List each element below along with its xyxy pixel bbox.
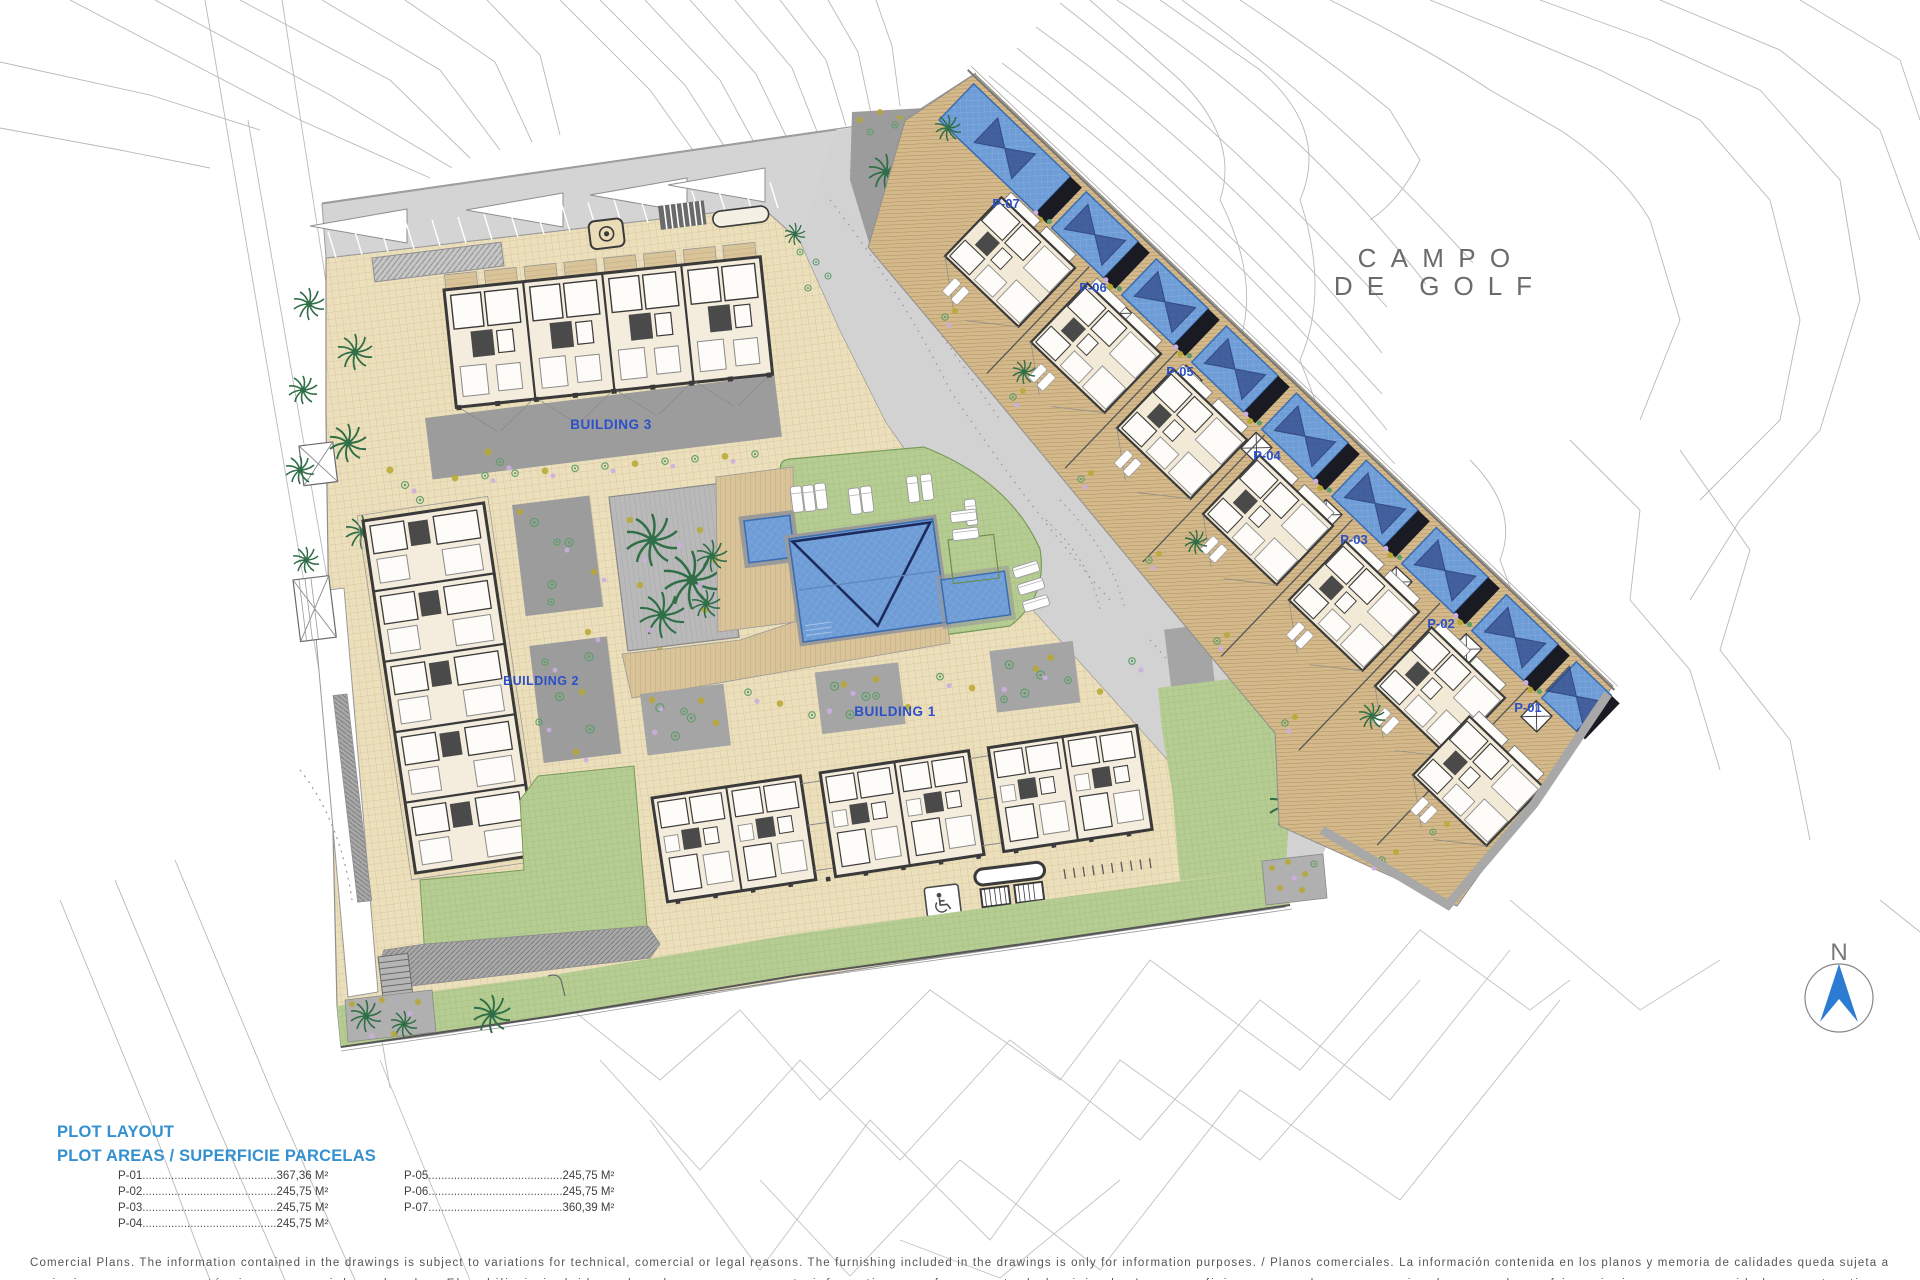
svg-text:P-04..........................: P-04....................................… [118, 1218, 328, 1230]
svg-text:PLOT LAYOUT: PLOT LAYOUT [57, 1123, 174, 1141]
svg-text:DE GOLF: DE GOLF [1334, 271, 1546, 301]
svg-text:P-01: P-01 [1514, 700, 1541, 715]
svg-text:N: N [1830, 939, 1847, 966]
svg-text:P-07: P-07 [992, 196, 1019, 211]
svg-text:P-03: P-03 [1340, 532, 1367, 547]
svg-text:BUILDING 3: BUILDING 3 [570, 417, 652, 432]
svg-text:BUILDING 1: BUILDING 1 [854, 704, 936, 719]
svg-text:P-02: P-02 [1427, 616, 1454, 631]
svg-text:P-04: P-04 [1253, 448, 1281, 463]
svg-text:P-02..........................: P-02....................................… [118, 1186, 328, 1198]
svg-text:BUILDING 2: BUILDING 2 [503, 674, 579, 688]
svg-text:P-06: P-06 [1079, 280, 1106, 295]
svg-text:P-01..........................: P-01....................................… [118, 1170, 328, 1182]
svg-text:P-05: P-05 [1166, 364, 1193, 379]
svg-text:Comercial Plans. The informati: Comercial Plans. The information contain… [30, 1257, 1889, 1269]
svg-text:P-06..........................: P-06....................................… [404, 1186, 614, 1198]
svg-text:P-03..........................: P-03....................................… [118, 1202, 328, 1214]
svg-text:P-07..........................: P-07....................................… [404, 1202, 614, 1214]
svg-text:P-05..........................: P-05....................................… [404, 1170, 614, 1182]
svg-text:CAMPO: CAMPO [1358, 243, 1525, 273]
svg-text:PLOT AREAS / SUPERFICIE PARCEL: PLOT AREAS / SUPERFICIE PARCELAS [57, 1147, 376, 1165]
